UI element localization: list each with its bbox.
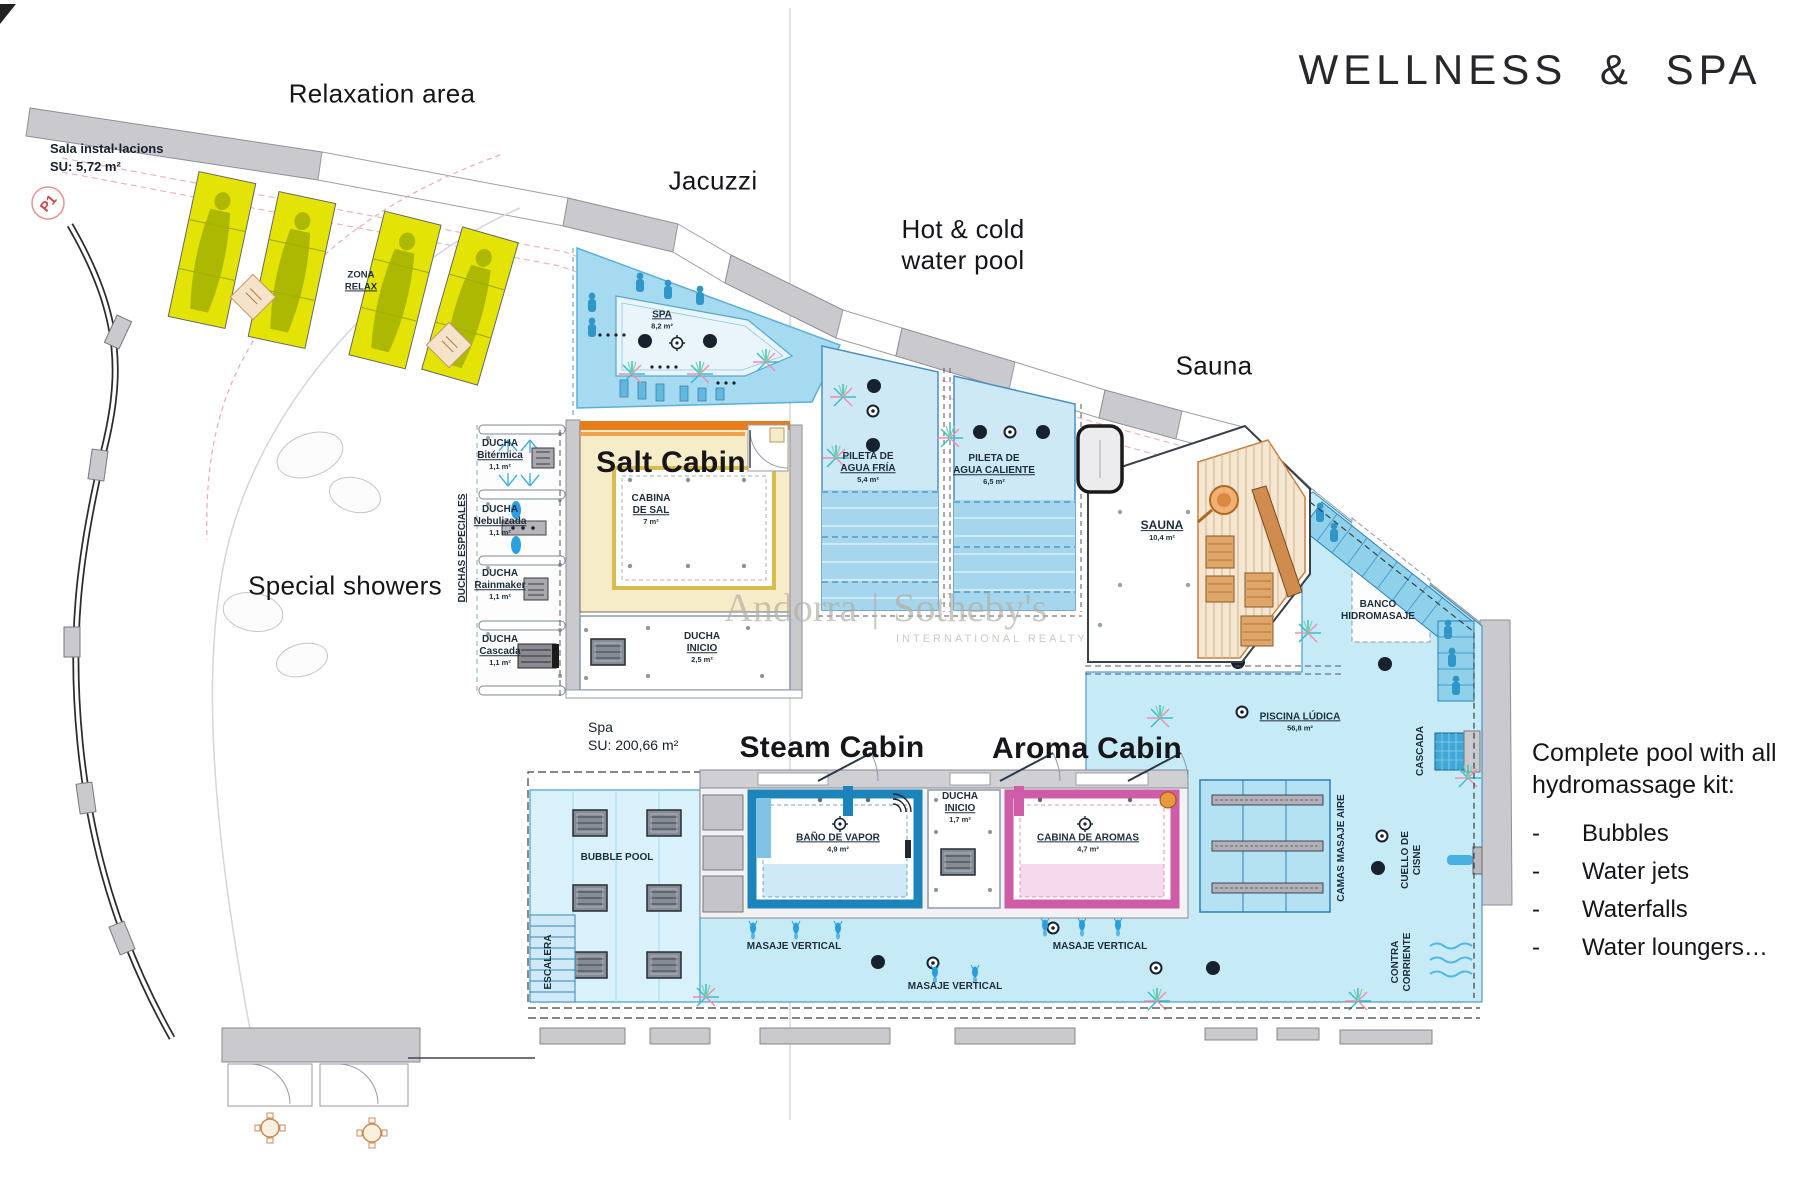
left-curved-wall — [32, 187, 172, 1038]
list-item: -Water loungers… — [1532, 934, 1800, 962]
watermark-divider: | — [871, 584, 879, 631]
label-piscina-ludica: PISCINA LÚDICA56,8 m² — [1260, 711, 1341, 732]
label-pileta-caliente: PILETA DEAGUA CALIENTE6,5 m² — [953, 453, 1035, 487]
label-masaje-vertical-2: MASAJE VERTICAL — [1053, 941, 1147, 953]
label-spa-tub: SPA8,2 m² — [651, 309, 673, 330]
label-bubble-pool: BUBBLE POOL — [581, 852, 654, 864]
label-sauna: Sauna — [1176, 351, 1253, 382]
label-sala-installacions: Sala instal·lacions SU: 5,72 m² — [50, 140, 163, 175]
label-cascada: CASCADA — [1415, 726, 1427, 776]
list-item: -Waterfalls — [1532, 896, 1800, 924]
label-ducha-rainmaker: DUCHARainmaker1,1 m² — [474, 568, 525, 602]
label-banco-hidromasaje: BANCOHIDROMASAJE — [1341, 599, 1415, 623]
watermark-sub: INTERNATIONAL REALTY — [896, 633, 1088, 645]
label-ducha-nebulizada: DUCHANebulizada1,1 m² — [474, 504, 527, 538]
label-ducha-inicio-center: DUCHAINICIO1,7 m² — [942, 791, 978, 825]
label-aroma-cabin: Aroma Cabin — [992, 732, 1182, 766]
camas-masaje-aire — [1200, 780, 1330, 912]
page-title: WELLNESS & SPA — [1298, 46, 1761, 94]
jacuzzi-pool — [573, 248, 840, 415]
watermark: Andorra | Sotheby's INTERNATIONAL REALTY — [724, 584, 1088, 645]
label-ducha-inicio-salt: DUCHAINICIO2,5 m² — [684, 631, 720, 665]
pool-note: Complete pool with all hydromassage kit: — [1532, 738, 1800, 801]
label-camas-masaje-aire: CAMAS MASAJE AIRE — [1336, 794, 1348, 901]
label-cabina-de-sal: CABINADE SAL7 m² — [632, 493, 671, 527]
label-escalera: ESCALERA — [543, 934, 555, 989]
label-cuello-de-cisne: CUELLO DECISNE — [1400, 831, 1424, 889]
label-hot-cold-pool: Hot & cold water pool — [902, 214, 1025, 276]
label-cabina-de-aromas: CABINA DE AROMAS4,7 m² — [1037, 832, 1139, 853]
label-contra-corriente: CONTRACORRIENTE — [1390, 933, 1414, 992]
cascada-feature — [1435, 731, 1480, 772]
label-pileta-fria: PILETA DEAGUA FRÍA5,4 m² — [840, 451, 895, 485]
bottom-walls — [222, 1028, 1432, 1148]
floorplan-page: WELLNESS & SPA Relaxation area Jacuzzi H… — [0, 0, 1800, 1200]
label-jacuzzi: Jacuzzi — [669, 166, 758, 197]
label-ducha-cascada: DUCHACascada1,1 m² — [479, 634, 520, 668]
label-bano-de-vapor: BAÑO DE VAPOR4,9 m² — [796, 832, 880, 853]
watermark-right: Sotheby's — [893, 584, 1047, 631]
label-duchas-especiales: DUCHAS ESPECIALES — [457, 494, 469, 603]
label-salt-cabin: Salt Cabin — [596, 446, 746, 480]
label-steam-cabin: Steam Cabin — [739, 731, 924, 765]
label-ducha-bitermica: DUCHABitérmica1,1 m² — [477, 438, 523, 472]
watermark-left: Andorra — [724, 584, 857, 631]
label-masaje-vertical-3: MASAJE VERTICAL — [908, 981, 1002, 993]
stone-blobs — [220, 424, 384, 683]
page-corner-mark — [0, 4, 16, 24]
pool-note-list: -Bubbles -Water jets -Waterfalls -Water … — [1532, 820, 1800, 972]
label-spa-zone: SpaSU: 200,66 m² — [588, 718, 678, 754]
label-masaje-vertical-1: MASAJE VERTICAL — [747, 941, 841, 953]
list-item: -Water jets — [1532, 858, 1800, 886]
label-special-showers: Special showers — [248, 571, 442, 602]
label-relaxation-area: Relaxation area — [289, 79, 476, 110]
list-item: -Bubbles — [1532, 820, 1800, 848]
label-sauna-room: SAUNA10,4 m² — [1141, 518, 1184, 542]
label-zona-relax: ZONARELAX — [345, 269, 377, 292]
